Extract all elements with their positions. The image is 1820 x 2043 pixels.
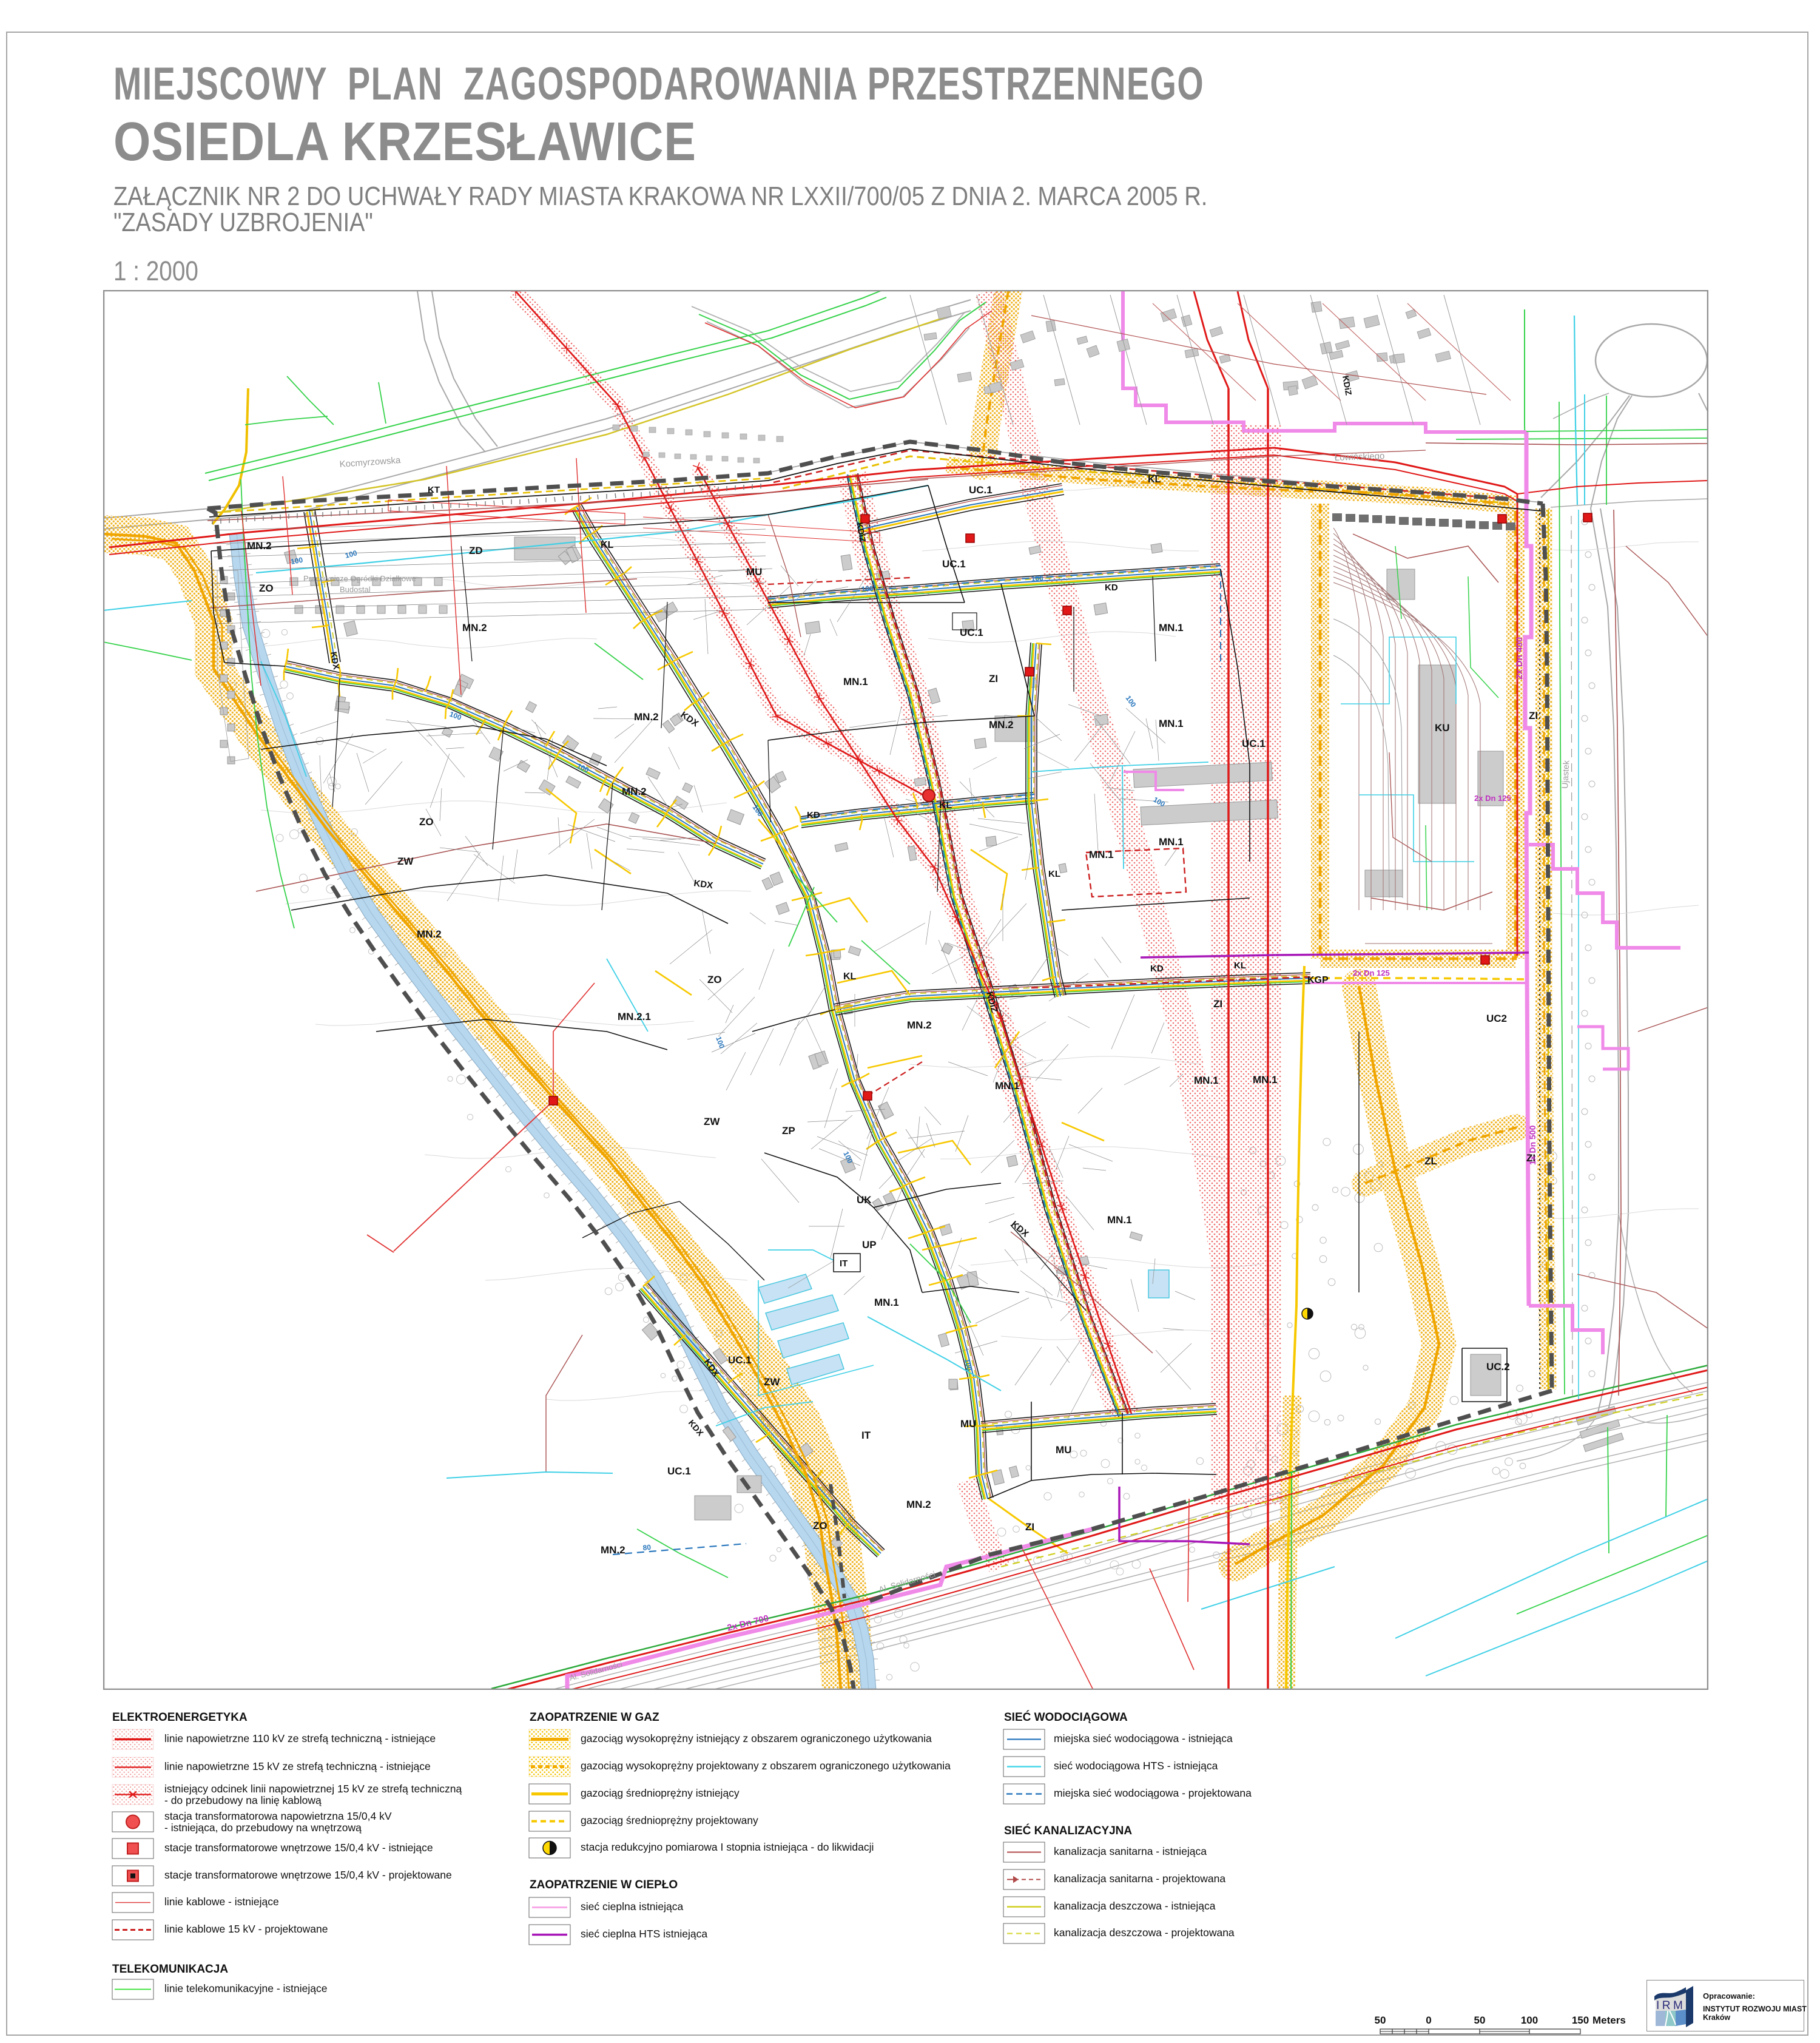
- svg-text:MN.2: MN.2: [989, 719, 1014, 731]
- svg-text:KL: KL: [601, 540, 614, 550]
- svg-text:KL: KL: [1048, 869, 1060, 879]
- svg-text:UC.2: UC.2: [1486, 1361, 1510, 1373]
- svg-text:UP: UP: [862, 1239, 877, 1251]
- svg-text:ZI: ZI: [1025, 1521, 1034, 1533]
- svg-text:2x Dn 125: 2x Dn 125: [1353, 968, 1390, 978]
- svg-text:ZW: ZW: [704, 1116, 720, 1127]
- svg-text:MN.1: MN.1: [1159, 622, 1184, 633]
- svg-text:ZO: ZO: [707, 974, 722, 985]
- svg-text:KDX: KDX: [679, 709, 701, 729]
- svg-text:MU: MU: [746, 566, 762, 578]
- svg-text:UK: UK: [857, 1194, 872, 1206]
- svg-text:MN.1: MN.1: [843, 676, 868, 687]
- svg-text:MN.1: MN.1: [1159, 718, 1184, 729]
- svg-text:KL: KL: [939, 800, 952, 811]
- svg-text:KL: KL: [1148, 474, 1161, 485]
- svg-text:80: 80: [642, 1543, 652, 1552]
- svg-text:MN.1: MN.1: [874, 1297, 899, 1308]
- svg-text:ZO: ZO: [419, 816, 434, 828]
- svg-text:MN.2: MN.2: [622, 786, 647, 797]
- svg-text:100: 100: [751, 803, 765, 819]
- svg-text:100: 100: [344, 549, 358, 560]
- svg-text:KU: KU: [1435, 722, 1450, 734]
- svg-text:ZI: ZI: [989, 673, 998, 684]
- svg-text:Ujastek: Ujastek: [1560, 760, 1571, 789]
- svg-text:KDX: KDX: [693, 878, 713, 891]
- svg-text:ZW: ZW: [397, 856, 414, 867]
- svg-text:ZI: ZI: [1529, 710, 1538, 721]
- svg-text:IRM: IRM: [1656, 1999, 1685, 2012]
- svg-text:KL: KL: [1234, 961, 1246, 971]
- svg-text:Pracownicze Ogródki Działkowe: Pracownicze Ogródki Działkowe: [303, 574, 416, 583]
- svg-text:MN.1: MN.1: [995, 1080, 1020, 1092]
- svg-text:ZD: ZD: [469, 545, 483, 556]
- svg-text:KD: KD: [1150, 964, 1164, 974]
- svg-text:IT: IT: [861, 1430, 871, 1441]
- svg-text:ZW: ZW: [764, 1376, 780, 1388]
- svg-text:100: 100: [714, 1035, 726, 1050]
- svg-text:ZP: ZP: [782, 1125, 795, 1136]
- svg-text:ZO: ZO: [259, 583, 274, 594]
- svg-text:MN.2: MN.2: [601, 1544, 625, 1556]
- svg-text:UC2: UC2: [1486, 1013, 1507, 1024]
- svg-text:100: 100: [1124, 694, 1138, 709]
- svg-text:MN.2: MN.2: [906, 1499, 931, 1510]
- svg-text:UC.1: UC.1: [960, 627, 983, 638]
- svg-text:MN.2: MN.2: [247, 540, 272, 552]
- svg-text:MU: MU: [1056, 1444, 1071, 1456]
- svg-text:100: 100: [290, 556, 303, 566]
- svg-text:UC.1: UC.1: [1242, 738, 1266, 749]
- svg-text:KGP: KGP: [1307, 975, 1329, 985]
- svg-text:Kocmyrzowska: Kocmyrzowska: [339, 455, 401, 470]
- svg-text:MN.2: MN.2: [634, 711, 659, 723]
- svg-text:UC.1: UC.1: [728, 1354, 752, 1366]
- svg-text:ZI: ZI: [1213, 998, 1222, 1010]
- svg-text:KD: KD: [1105, 583, 1118, 593]
- svg-text:MN.1: MN.1: [1253, 1074, 1278, 1086]
- svg-text:100: 100: [861, 584, 874, 593]
- svg-text:Budostal: Budostal: [340, 585, 371, 594]
- svg-text:KD: KD: [807, 810, 820, 820]
- svg-text:2x Dn 400: 2x Dn 400: [1514, 637, 1525, 680]
- svg-text:MN.2: MN.2: [907, 1019, 932, 1031]
- svg-text:2x Dn 125: 2x Dn 125: [1474, 794, 1511, 803]
- svg-text:KDX: KDX: [1009, 1219, 1030, 1239]
- svg-text:Al. Solidarności: Al. Solidarności: [568, 1660, 624, 1683]
- svg-text:100: 100: [1031, 574, 1043, 583]
- svg-text:KL: KL: [843, 971, 857, 982]
- svg-text:UC.1: UC.1: [969, 484, 993, 496]
- svg-text:UC.1: UC.1: [942, 558, 966, 570]
- svg-text:MN.2.1: MN.2.1: [618, 1011, 651, 1022]
- svg-text:ZL: ZL: [1424, 1155, 1437, 1167]
- svg-text:Łowińskiego: Łowińskiego: [1335, 451, 1385, 463]
- svg-text:ZO: ZO: [813, 1520, 827, 1531]
- svg-text:MN.1: MN.1: [1194, 1075, 1219, 1086]
- svg-text:UC.1: UC.1: [667, 1465, 691, 1477]
- svg-text:MN.2: MN.2: [417, 928, 442, 940]
- svg-text:MN.1: MN.1: [1107, 1214, 1132, 1226]
- svg-text:KDX: KDX: [687, 1418, 706, 1438]
- svg-text:IT: IT: [840, 1258, 848, 1269]
- svg-text:MU: MU: [960, 1418, 976, 1430]
- svg-text:MN.1: MN.1: [1089, 849, 1114, 860]
- svg-text:KDX: KDX: [329, 651, 342, 671]
- svg-text:MN.2: MN.2: [462, 622, 487, 633]
- svg-text:KT: KT: [428, 485, 440, 495]
- svg-text:MN.1: MN.1: [1159, 836, 1184, 848]
- svg-text:1x Dn 500: 1x Dn 500: [1528, 1125, 1537, 1165]
